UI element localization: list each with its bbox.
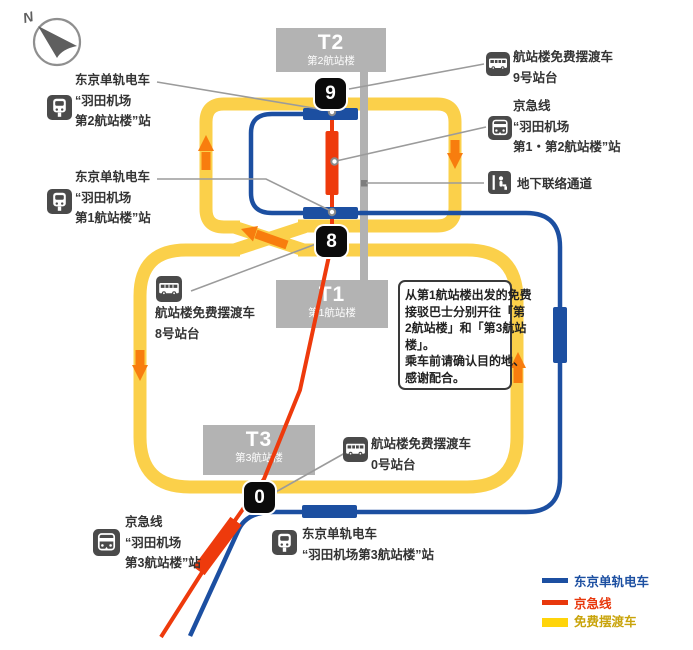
shuttle-platform-0-label: 航站楼免费摆渡车 0号站台 — [371, 434, 471, 475]
shuttle-stop-badge-0: 0 — [244, 482, 275, 513]
monorail-station-t3-bar — [302, 505, 357, 518]
monorail-icon — [47, 95, 72, 125]
legend-swatch-keikyu — [542, 600, 568, 605]
leader-monorail-t1 — [157, 179, 331, 211]
monorail-station-east-bar — [553, 307, 567, 363]
monorail-t1-station-label: 东京单轨电车 “羽田机场 第1航站楼”站 — [75, 167, 151, 229]
shuttle-stop-badge-9: 9 — [315, 78, 346, 109]
compass-icon — [34, 19, 80, 65]
underground-passage-icon — [488, 171, 511, 199]
legend-label-keikyu: 京急线 — [574, 593, 612, 612]
shuttle-platform-8-label: 航站楼免费摆渡车 8号站台 — [155, 303, 255, 344]
connector-dot-monorail-t2 — [329, 109, 335, 115]
shuttle-bus-icon — [343, 437, 368, 467]
shuttle-stop-badge-8: 8 — [316, 226, 347, 257]
legend-label-shuttle: 免费摆渡车 — [574, 611, 637, 630]
keikyu-t1-t2-station-label: 京急线 “羽田机场 第1・第2航站楼”站 — [513, 96, 621, 158]
shuttle-notice-box: 从第1航站楼出发的免费 接驳巴士分别开往「第 2航站楼」和「第3航站 楼」。 乘… — [398, 280, 512, 390]
keikyu-train-icon — [488, 116, 512, 145]
monorail-icon — [47, 189, 72, 219]
keikyu-train-icon — [93, 529, 120, 561]
leader-keikyu-t1-t2 — [336, 127, 486, 161]
monorail-icon — [272, 530, 297, 560]
underground-passage-label: 地下联络通道 — [517, 174, 592, 195]
keikyu-t3-station-label: 京急线 “羽田机场 第3航站楼”站 — [125, 512, 201, 574]
connector-dot-monorail-t1 — [329, 209, 335, 215]
shuttle-bus-icon — [486, 52, 510, 81]
haneda-terminal-shuttle-map: T2 第2航站楼 T1 第1航站楼 T3 第3航站楼 — [0, 0, 693, 650]
legend-swatch-monorail — [542, 578, 568, 583]
leader-shuttle-9 — [349, 64, 484, 89]
legend-swatch-shuttle — [542, 618, 568, 627]
connector-dot-keikyu — [331, 158, 337, 164]
monorail-t3-station-label: 东京单轨电车 “羽田机场第3航站楼”站 — [302, 524, 434, 565]
shuttle-platform-9-label: 航站楼免费摆渡车 9号站台 — [513, 47, 613, 88]
legend-label-monorail: 东京单轨电车 — [574, 571, 649, 590]
monorail-t2-station-label: 东京单轨电车 “羽田机场 第2航站楼”站 — [75, 70, 151, 132]
